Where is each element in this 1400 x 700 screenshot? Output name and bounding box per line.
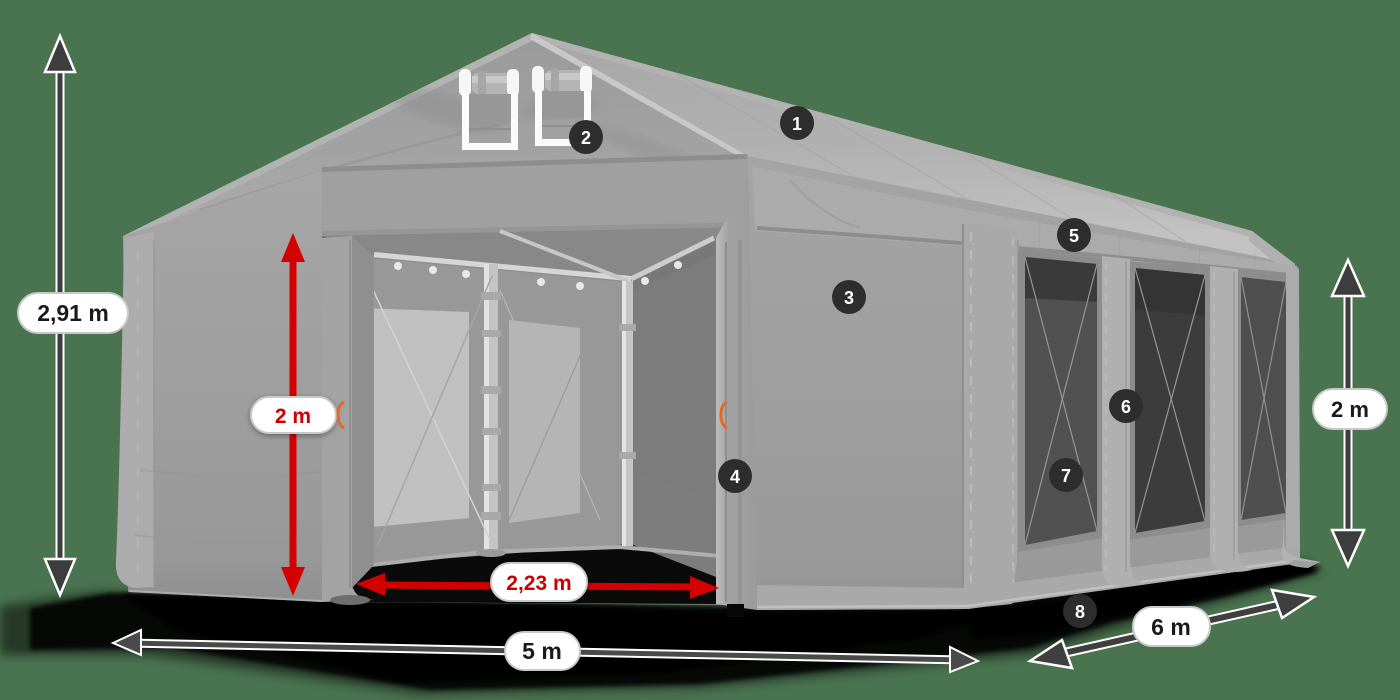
svg-text:6: 6 [1121, 397, 1131, 417]
svg-text:3: 3 [844, 288, 854, 308]
svg-text:7: 7 [1061, 466, 1071, 486]
svg-text:4: 4 [730, 467, 740, 487]
svg-text:2,91 m: 2,91 m [37, 300, 109, 326]
svg-text:2 m: 2 m [275, 405, 311, 428]
svg-text:5 m: 5 m [522, 638, 562, 664]
svg-text:6 m: 6 m [1151, 614, 1191, 640]
svg-text:2: 2 [581, 128, 591, 148]
svg-text:2 m: 2 m [1331, 397, 1369, 422]
svg-text:1: 1 [792, 114, 802, 134]
svg-text:8: 8 [1075, 602, 1085, 622]
svg-text:2,23 m: 2,23 m [506, 572, 571, 595]
svg-text:5: 5 [1069, 226, 1079, 246]
